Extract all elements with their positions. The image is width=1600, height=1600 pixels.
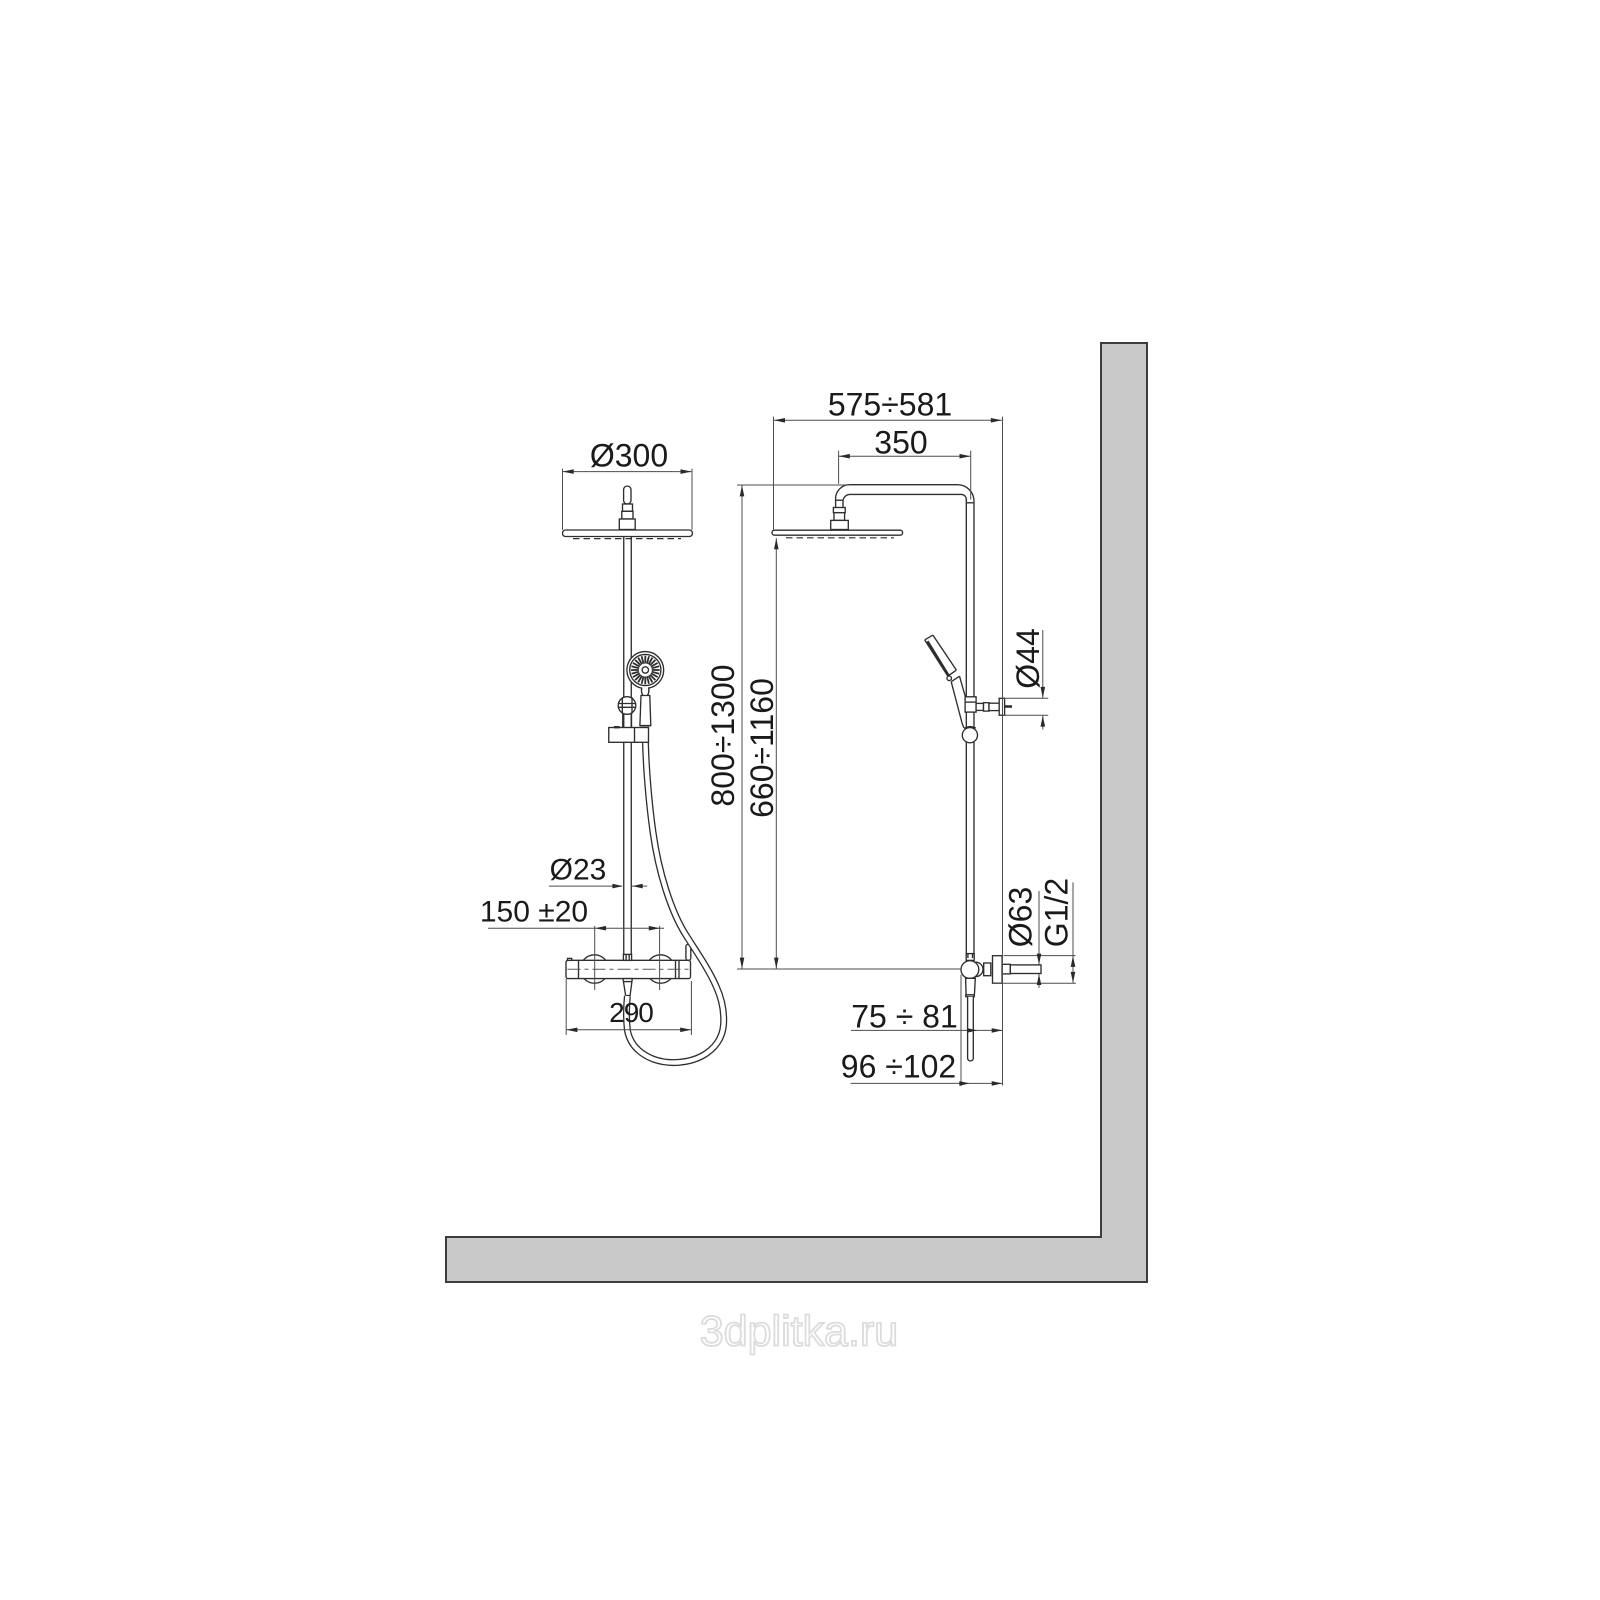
svg-text:3dplitka.ru: 3dplitka.ru: [700, 1308, 898, 1356]
svg-text:575÷581: 575÷581: [828, 387, 952, 423]
svg-text:Ø44: Ø44: [1010, 628, 1046, 688]
svg-text:800÷1300: 800÷1300: [705, 664, 741, 806]
svg-text:Ø63: Ø63: [1003, 887, 1039, 947]
svg-text:Ø23: Ø23: [550, 854, 607, 887]
svg-text:96 ÷102: 96 ÷102: [841, 1049, 956, 1085]
svg-text:660÷1160: 660÷1160: [744, 678, 780, 818]
svg-text:Ø300: Ø300: [590, 438, 668, 474]
svg-text:290: 290: [609, 997, 653, 1028]
svg-text:G1/2: G1/2: [1039, 878, 1075, 947]
svg-text:75 ÷ 81: 75 ÷ 81: [851, 999, 958, 1035]
svg-text:350: 350: [874, 425, 927, 461]
svg-text:150 ±20: 150 ±20: [480, 896, 588, 929]
